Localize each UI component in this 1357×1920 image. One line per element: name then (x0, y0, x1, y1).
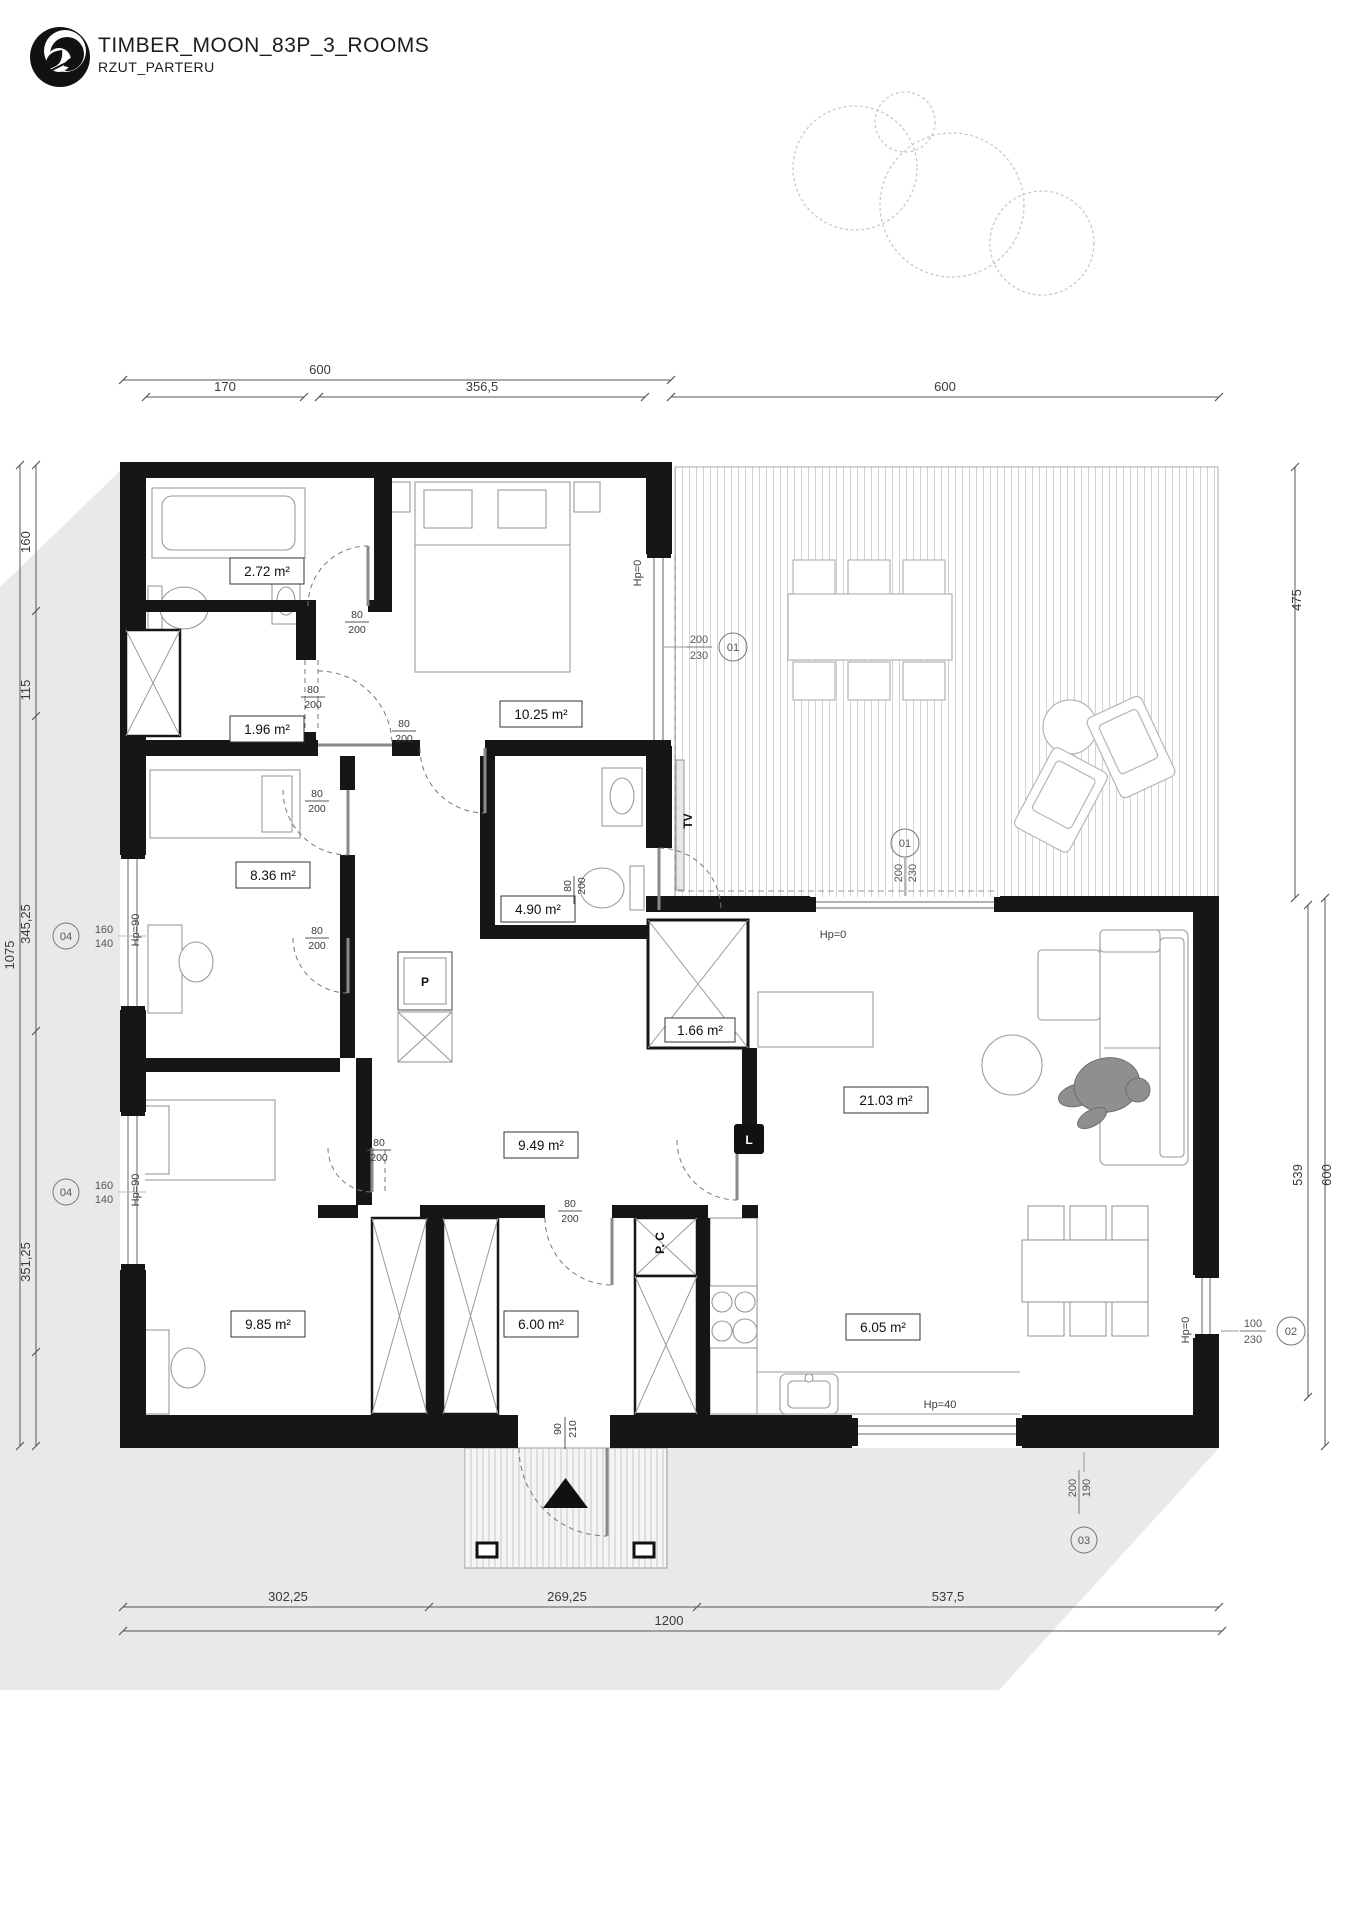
hall-wardrobe-icon (126, 630, 180, 736)
svg-text:200: 200 (348, 624, 366, 636)
svg-text:6.00 m²: 6.00 m² (518, 1317, 564, 1332)
logo (30, 27, 90, 87)
svg-text:90: 90 (552, 1423, 564, 1435)
single-bed-2 (135, 1100, 275, 1180)
sill-living-south: Hp=0 (820, 929, 847, 941)
washer-label: P (421, 975, 429, 989)
sill-right-window: Hp=0 (1180, 1317, 1192, 1344)
svg-text:01: 01 (899, 838, 911, 850)
svg-text:80: 80 (307, 684, 319, 696)
wardrobe-1 (372, 1218, 427, 1414)
tall-cabinet (635, 1276, 697, 1414)
sill-kitchen: Hp=40 (924, 1399, 957, 1411)
tree-icon (793, 92, 1094, 295)
sill-left-2: Hp=90 (130, 1174, 142, 1207)
window-bedroom (647, 552, 671, 746)
terrace-dining-set (788, 560, 952, 700)
dim-left-160: 160 (18, 531, 33, 553)
svg-text:230: 230 (690, 650, 708, 662)
svg-text:80: 80 (562, 880, 574, 892)
dim-top-170: 170 (214, 379, 236, 394)
dim-top-600: 600 (309, 362, 331, 377)
dim-top-600-right: 600 (934, 379, 956, 394)
svg-text:210: 210 (567, 1420, 579, 1438)
tv-label: TV (681, 813, 695, 828)
kitchen-island (758, 992, 873, 1047)
closet-box (398, 1012, 452, 1062)
svg-text:1.96 m²: 1.96 m² (244, 722, 290, 737)
svg-text:140: 140 (95, 1194, 113, 1206)
double-bed (384, 482, 600, 672)
svg-text:8.36 m²: 8.36 m² (250, 868, 296, 883)
svg-text:02: 02 (1285, 1326, 1297, 1338)
svg-text:L: L (745, 1133, 752, 1147)
dim-left-1075: 1075 (2, 941, 17, 970)
svg-text:10.25 m²: 10.25 m² (514, 707, 568, 722)
fridge-label: L (734, 1124, 764, 1154)
svg-text:80: 80 (564, 1198, 576, 1210)
wardrobe-2 (443, 1218, 498, 1414)
svg-text:80: 80 (351, 609, 363, 621)
svg-text:200: 200 (576, 877, 588, 895)
dim-right-539: 539 (1290, 1164, 1305, 1186)
svg-text:03: 03 (1078, 1535, 1090, 1547)
room-label-bedroom: 10.25 m² (500, 701, 582, 727)
svg-text:80: 80 (373, 1137, 385, 1149)
dining-set (1022, 1206, 1148, 1336)
dim-left-345: 345,25 (18, 904, 33, 944)
room-label-bathroom: 2.72 m² (230, 558, 304, 584)
dim-bottom-269: 269,25 (547, 1589, 587, 1604)
svg-text:04: 04 (60, 1187, 72, 1199)
stove (708, 1286, 757, 1348)
window-right (1195, 1273, 1219, 1339)
svg-text:6.05 m²: 6.05 m² (860, 1320, 906, 1335)
svg-text:80: 80 (311, 925, 323, 937)
svg-text:200: 200 (370, 1152, 388, 1164)
svg-text:200: 200 (308, 803, 326, 815)
svg-text:200: 200 (395, 733, 413, 745)
room-label-kitchen: 6.05 m² (846, 1314, 920, 1340)
svg-text:1.66 m²: 1.66 m² (677, 1023, 723, 1038)
svg-text:200: 200 (690, 634, 708, 646)
terrace (675, 467, 1218, 898)
svg-text:100: 100 (1244, 1318, 1262, 1330)
svg-text:01: 01 (727, 642, 739, 654)
room-label-living: 21.03 m² (844, 1087, 928, 1113)
svg-text:2.72 m²: 2.72 m² (244, 564, 290, 579)
svg-text:80: 80 (311, 788, 323, 800)
room-label-shaft: 1.66 m² (665, 1018, 735, 1042)
dim-top-356: 356,5 (466, 379, 499, 394)
svg-text:80: 80 (398, 718, 410, 730)
bathtub (152, 488, 305, 558)
svg-text:200: 200 (1067, 1479, 1079, 1497)
dim-left-115: 115 (18, 680, 33, 701)
floor-plan-page: 600 170 356,5 600 160 115 345,25 351,25 … (0, 0, 1357, 1920)
dim-right-600: 600 (1319, 1164, 1334, 1186)
dim-bottom-537: 537,5 (932, 1589, 965, 1604)
dim-bottom-302: 302,25 (268, 1589, 308, 1604)
svg-text:200: 200 (561, 1213, 579, 1225)
svg-text:200: 200 (304, 699, 322, 711)
svg-text:21.03 m²: 21.03 m² (859, 1093, 913, 1108)
svg-text:230: 230 (1244, 1334, 1262, 1346)
window-kitchen (852, 1418, 1022, 1446)
sill-left-1: Hp=90 (130, 914, 142, 947)
svg-text:230: 230 (907, 864, 919, 882)
svg-text:4.90 m²: 4.90 m² (515, 902, 561, 917)
window-marker-O2: 100 230 02 (1221, 1317, 1305, 1346)
room-label-room985: 9.85 m² (231, 1311, 305, 1337)
room-label-vestibule: 6.00 m² (504, 1311, 578, 1337)
svg-text:160: 160 (95, 924, 113, 936)
wc-toilet (580, 866, 644, 910)
svg-text:160: 160 (95, 1180, 113, 1192)
floor-plan-drawing: 600 170 356,5 600 160 115 345,25 351,25 … (0, 0, 1357, 1920)
room-label-hall-small: 1.96 m² (230, 716, 304, 742)
svg-text:140: 140 (95, 938, 113, 950)
drawing-subtitle: RZUT_PARTERU (98, 59, 215, 75)
sill-bedroom: Hp=0 (632, 560, 644, 587)
kitchen-sink (780, 1374, 838, 1414)
svg-text:9.85 m²: 9.85 m² (245, 1317, 291, 1332)
svg-text:190: 190 (1081, 1479, 1093, 1497)
single-bed-1 (150, 770, 300, 838)
svg-text:04: 04 (60, 931, 72, 943)
svg-text:200: 200 (308, 940, 326, 952)
svg-text:200: 200 (893, 864, 905, 882)
entrance-porch (465, 1448, 667, 1568)
dim-right-475: 475 (1289, 589, 1304, 611)
wc-washbasin (602, 768, 642, 826)
svg-text:9.49 m²: 9.49 m² (518, 1138, 564, 1153)
drawing-title: TIMBER_MOON_83P_3_ROOMS (98, 34, 429, 57)
room-label-hall: 9.49 m² (504, 1132, 578, 1158)
boiler-label: P. C (653, 1232, 667, 1254)
coffee-table (982, 1035, 1042, 1095)
room-label-wc: 4.90 m² (501, 896, 575, 922)
dim-bottom-1200: 1200 (655, 1613, 684, 1628)
room-label-room836: 8.36 m² (236, 862, 310, 888)
window-living-south (810, 897, 1000, 912)
dim-left-351: 351,25 (18, 1242, 33, 1282)
